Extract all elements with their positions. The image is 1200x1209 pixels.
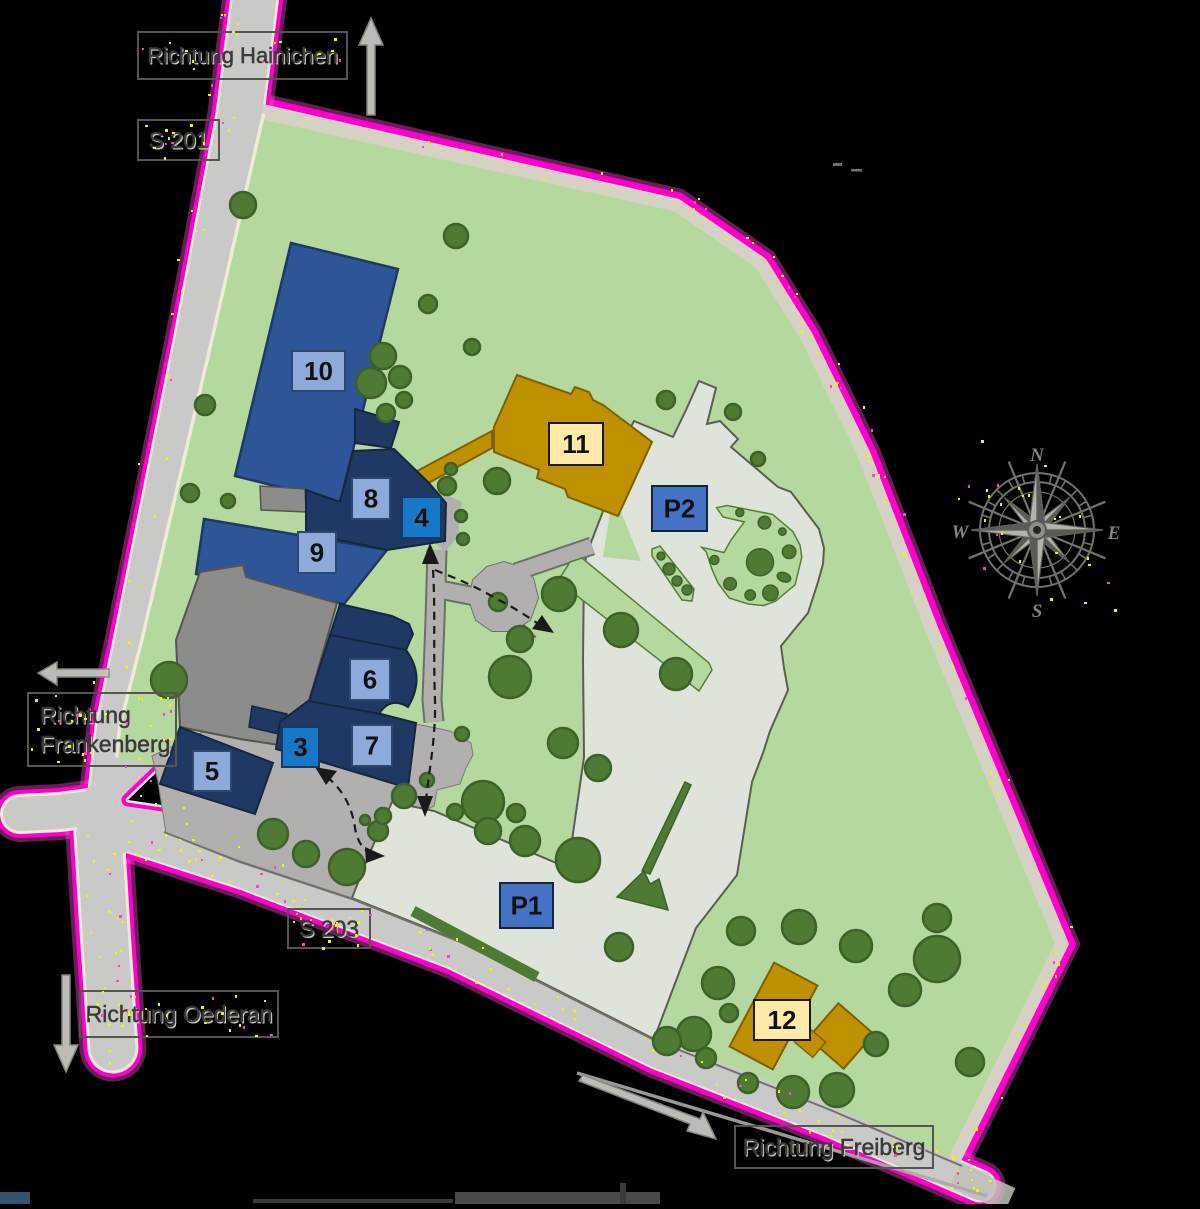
svg-text:3: 3 (293, 732, 307, 762)
svg-text:Frankenberg: Frankenberg (40, 731, 170, 757)
svg-text:9: 9 (310, 538, 324, 568)
svg-text:Richtung Hainichen: Richtung Hainichen (147, 43, 338, 68)
svg-text:5: 5 (205, 756, 219, 786)
svg-text:S: S (1032, 601, 1043, 622)
svg-text:S 201: S 201 (148, 127, 208, 153)
svg-text:11: 11 (562, 429, 590, 459)
svg-text:10: 10 (304, 356, 333, 386)
svg-text:8: 8 (364, 484, 378, 514)
svg-text:P2: P2 (664, 494, 696, 524)
svg-text:4: 4 (414, 503, 429, 533)
svg-text:N: N (1029, 445, 1045, 466)
svg-text:W: W (952, 522, 970, 543)
svg-text:6: 6 (363, 665, 377, 695)
svg-text:7: 7 (365, 731, 379, 761)
svg-text:12: 12 (768, 1005, 797, 1035)
svg-text:E: E (1107, 523, 1121, 544)
svg-text:P1: P1 (511, 891, 543, 921)
svg-text:Richtung: Richtung (40, 702, 131, 728)
svg-text:S 203: S 203 (299, 916, 359, 942)
svg-text:Richtung Oederan: Richtung Oederan (86, 1001, 273, 1027)
